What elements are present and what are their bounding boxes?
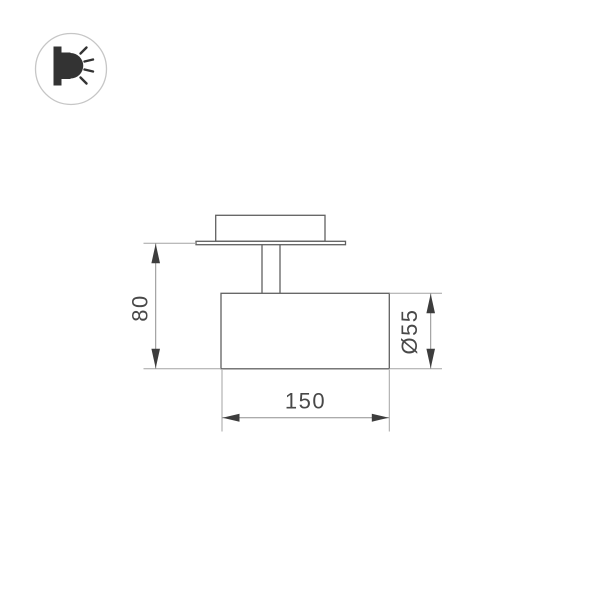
fixture-driver-box — [216, 215, 325, 241]
technical-drawing: 80 Ø55 150 — [0, 0, 600, 600]
logo-lamp-body — [62, 53, 71, 80]
arrow-down-icon — [151, 349, 160, 369]
logo-wall-plate — [54, 47, 62, 86]
dimension-label-height: 80 — [128, 294, 153, 321]
arrow-left-icon — [223, 414, 240, 422]
fixture-cylinder-body — [221, 293, 389, 369]
dimension-height-80: 80 — [128, 243, 222, 369]
arrow-down-icon — [426, 349, 435, 369]
dimension-diameter-55: Ø55 — [389, 293, 442, 369]
dimension-label-diameter: Ø55 — [397, 308, 422, 354]
arrow-up-icon — [426, 294, 435, 314]
dimension-length-150: 150 — [222, 370, 389, 432]
wall-light-icon — [36, 34, 107, 105]
fixture-outline — [196, 215, 389, 368]
dimension-label-length: 150 — [285, 389, 326, 414]
arrow-up-icon — [151, 244, 160, 264]
arrow-right-icon — [372, 414, 389, 422]
fixture-ceiling-plate — [196, 241, 346, 244]
drawing-canvas: 80 Ø55 150 — [0, 0, 600, 600]
